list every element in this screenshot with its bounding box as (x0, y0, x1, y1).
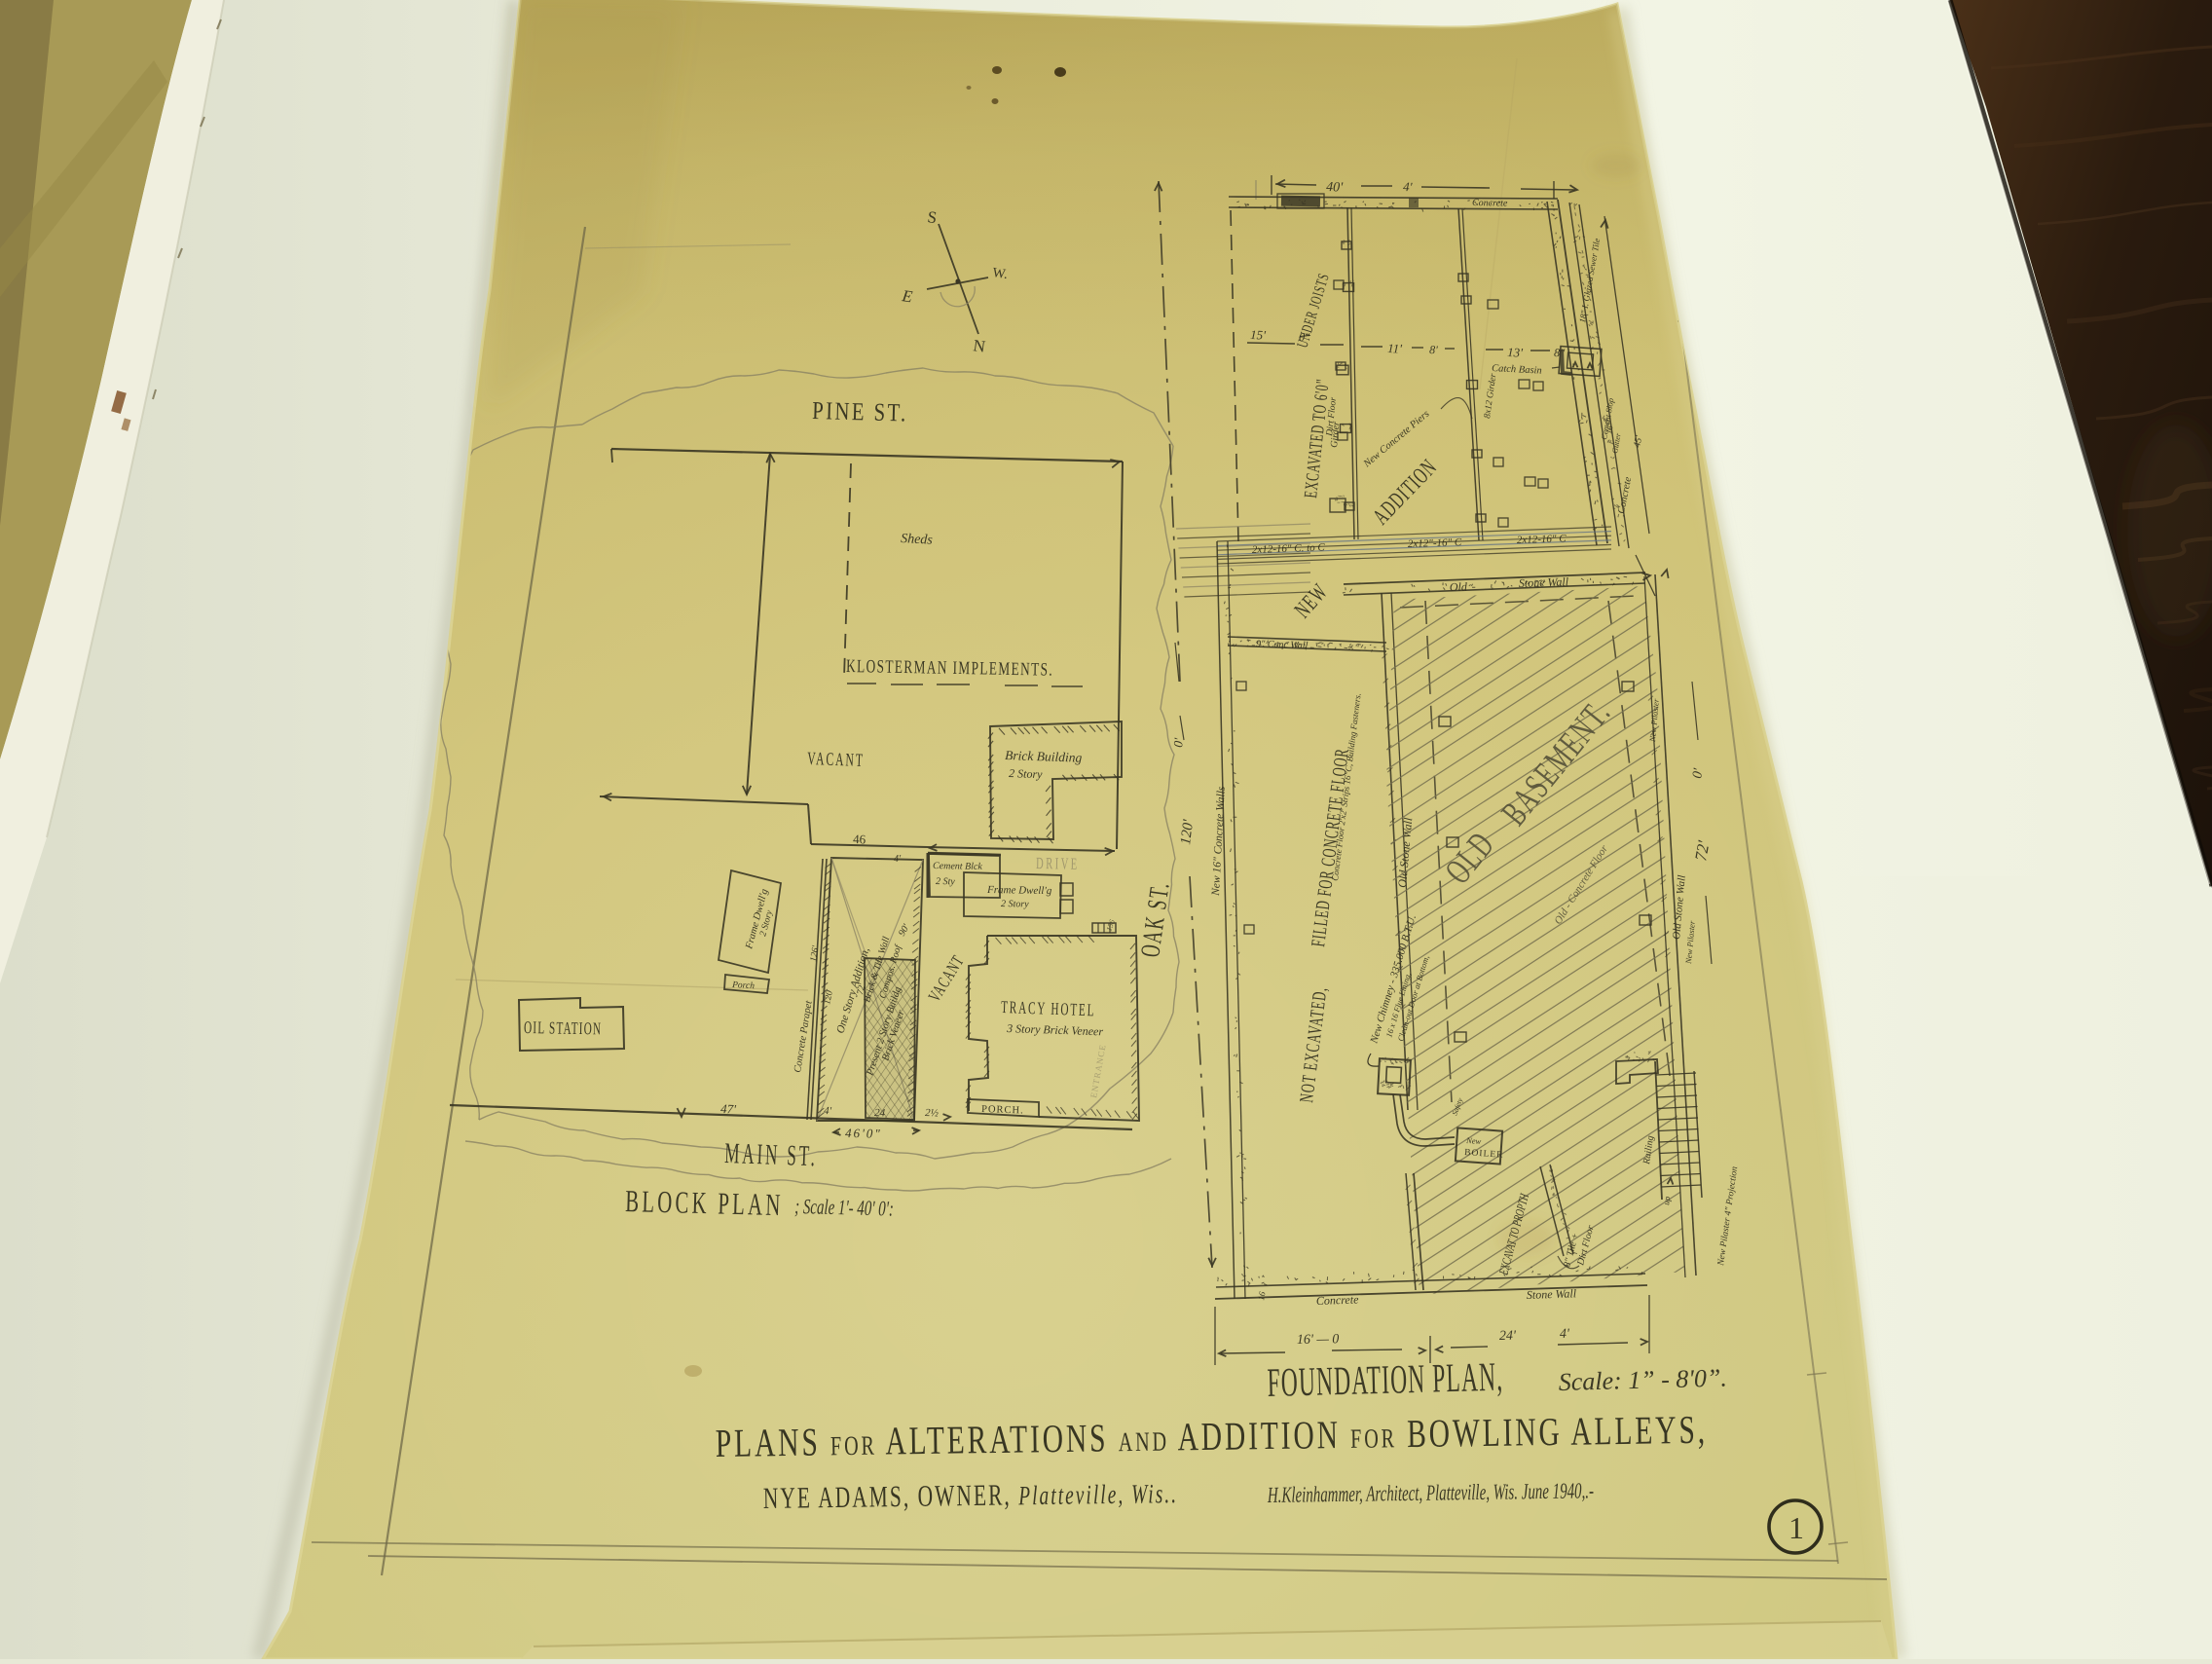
svg-text:OIL STATION: OIL STATION (524, 1019, 603, 1040)
svg-text:Stone Wall: Stone Wall (1519, 574, 1569, 590)
svg-text:4': 4' (894, 854, 902, 865)
svg-text:New: New (1465, 1135, 1482, 1146)
svg-text:1: 1 (1788, 1510, 1804, 1545)
svg-text:NYE ADAMS, OWNER, Platteville,: NYE ADAMS, OWNER, Platteville, Wis.. (763, 1475, 1179, 1515)
svg-text:2½: 2½ (925, 1107, 939, 1119)
svg-text:PINE ST.: PINE ST. (812, 397, 908, 427)
svg-text:FOUNDATION PLAN,: FOUNDATION PLAN, (1267, 1355, 1504, 1406)
svg-text:11': 11' (1387, 341, 1403, 356)
svg-text:4': 4' (824, 1105, 832, 1117)
svg-text:24: 24 (874, 1107, 886, 1119)
svg-text:4': 4' (1403, 179, 1413, 194)
svg-text:72': 72' (1691, 839, 1713, 863)
svg-text:PORCH.: PORCH. (981, 1104, 1024, 1117)
svg-text:46'0": 46'0" (845, 1126, 882, 1141)
svg-text:Concrete: Concrete (1316, 1292, 1360, 1308)
svg-text:47': 47' (720, 1101, 737, 1117)
svg-text:Concrete: Concrete (1472, 198, 1508, 209)
svg-text:Scale: 1” - 8'0”.: Scale: 1” - 8'0”. (1558, 1363, 1727, 1396)
svg-text:40': 40' (1326, 180, 1345, 196)
svg-text:Porch: Porch (731, 980, 756, 991)
svg-text:W.: W. (991, 266, 1008, 282)
svg-text:; Scale 1'- 40' 0':: ; Scale 1'- 40' 0': (794, 1195, 894, 1221)
svg-text:DRIVE: DRIVE (1036, 855, 1080, 874)
svg-text:15': 15' (1250, 327, 1267, 343)
svg-text:Sheds: Sheds (901, 532, 934, 548)
svg-text:13': 13' (1507, 345, 1524, 360)
svg-text:46: 46 (853, 832, 866, 846)
svg-text:BLOCK PLAN: BLOCK PLAN (625, 1184, 784, 1223)
svg-text:24': 24' (1499, 1329, 1517, 1344)
svg-text:Old: Old (1450, 579, 1468, 594)
svg-text:2 Sty: 2 Sty (936, 876, 955, 887)
svg-text:H.Kleinhammer, Architect, Plat: H.Kleinhammer, Architect, Platteville, W… (1267, 1479, 1594, 1508)
svg-text:16' — 0: 16' — 0 (1297, 1332, 1340, 1348)
svg-text:VACANT: VACANT (807, 749, 865, 770)
svg-text:Stone Wall: Stone Wall (1527, 1286, 1577, 1302)
svg-text:8': 8' (1429, 343, 1438, 356)
svg-text:N: N (972, 336, 986, 356)
svg-text:2 Story: 2 Story (1009, 766, 1043, 781)
svg-text:120': 120' (1178, 818, 1197, 845)
svg-text:4': 4' (1560, 1327, 1570, 1342)
svg-text:Brick Building: Brick Building (1005, 748, 1083, 765)
svg-text:Frame Dwell'g: Frame Dwell'g (986, 884, 1052, 897)
svg-text:TRACY HOTEL: TRACY HOTEL (1001, 999, 1096, 1021)
svg-text:2x12-16" C: 2x12-16" C (1517, 533, 1567, 546)
svg-text:9" Conc Wall: 9" Conc Wall (1256, 639, 1309, 651)
svg-text:2x12"-16" C: 2x12"-16" C (1408, 536, 1462, 550)
svg-text:Cement Blck: Cement Blck (933, 861, 983, 872)
svg-text:KLOSTERMAN IMPLEMENTS.: KLOSTERMAN IMPLEMENTS. (846, 655, 1053, 681)
svg-text:2 Story: 2 Story (1001, 899, 1029, 910)
svg-text:MAIN ST.: MAIN ST. (724, 1137, 819, 1172)
